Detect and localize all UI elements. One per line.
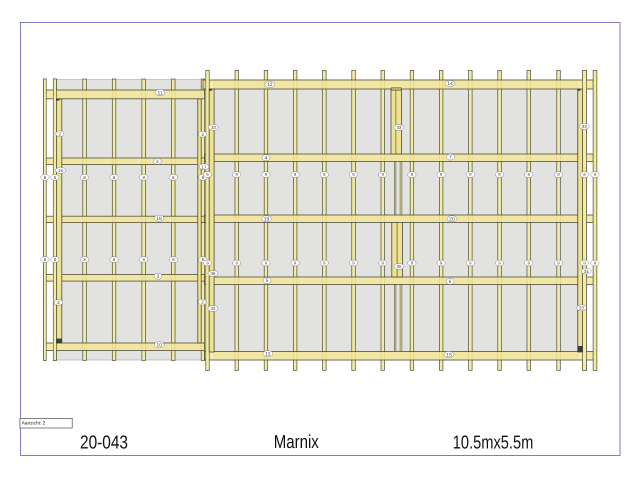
svg-text:15: 15	[446, 352, 452, 358]
svg-text:18: 18	[156, 216, 162, 222]
svg-text:7: 7	[449, 155, 452, 161]
svg-text:2: 2	[201, 300, 204, 305]
svg-text:6: 6	[449, 279, 452, 285]
svg-text:Aanzicht: 2: Aanzicht: 2	[22, 421, 46, 427]
svg-text:2: 2	[201, 132, 204, 137]
svg-text:19: 19	[264, 217, 270, 223]
svg-text:4: 4	[265, 156, 268, 162]
svg-text:36: 36	[210, 271, 215, 276]
svg-text:3: 3	[156, 159, 159, 165]
svg-text:11: 11	[157, 90, 162, 96]
svg-text:33: 33	[582, 124, 587, 129]
svg-text:33: 33	[211, 125, 216, 130]
svg-text:10.5mx5.5m: 10.5mx5.5m	[453, 431, 534, 452]
svg-text:2: 2	[57, 300, 60, 305]
svg-text:35: 35	[396, 264, 401, 269]
svg-text:20: 20	[449, 217, 455, 223]
svg-text:10: 10	[156, 343, 162, 349]
svg-text:33: 33	[210, 306, 215, 311]
svg-text:20-043: 20-043	[80, 431, 128, 452]
svg-text:16: 16	[58, 168, 63, 173]
svg-text:12: 12	[267, 82, 273, 88]
svg-text:5: 5	[266, 278, 269, 284]
svg-text:33: 33	[396, 125, 401, 130]
svg-text:2: 2	[59, 132, 62, 137]
svg-text:34: 34	[584, 269, 589, 274]
svg-text:3: 3	[157, 274, 160, 280]
svg-text:13: 13	[265, 351, 271, 357]
svg-text:17: 17	[202, 164, 207, 169]
svg-text:14: 14	[447, 81, 453, 87]
svg-text:Marnix: Marnix	[274, 431, 319, 452]
svg-text:33: 33	[579, 306, 584, 311]
